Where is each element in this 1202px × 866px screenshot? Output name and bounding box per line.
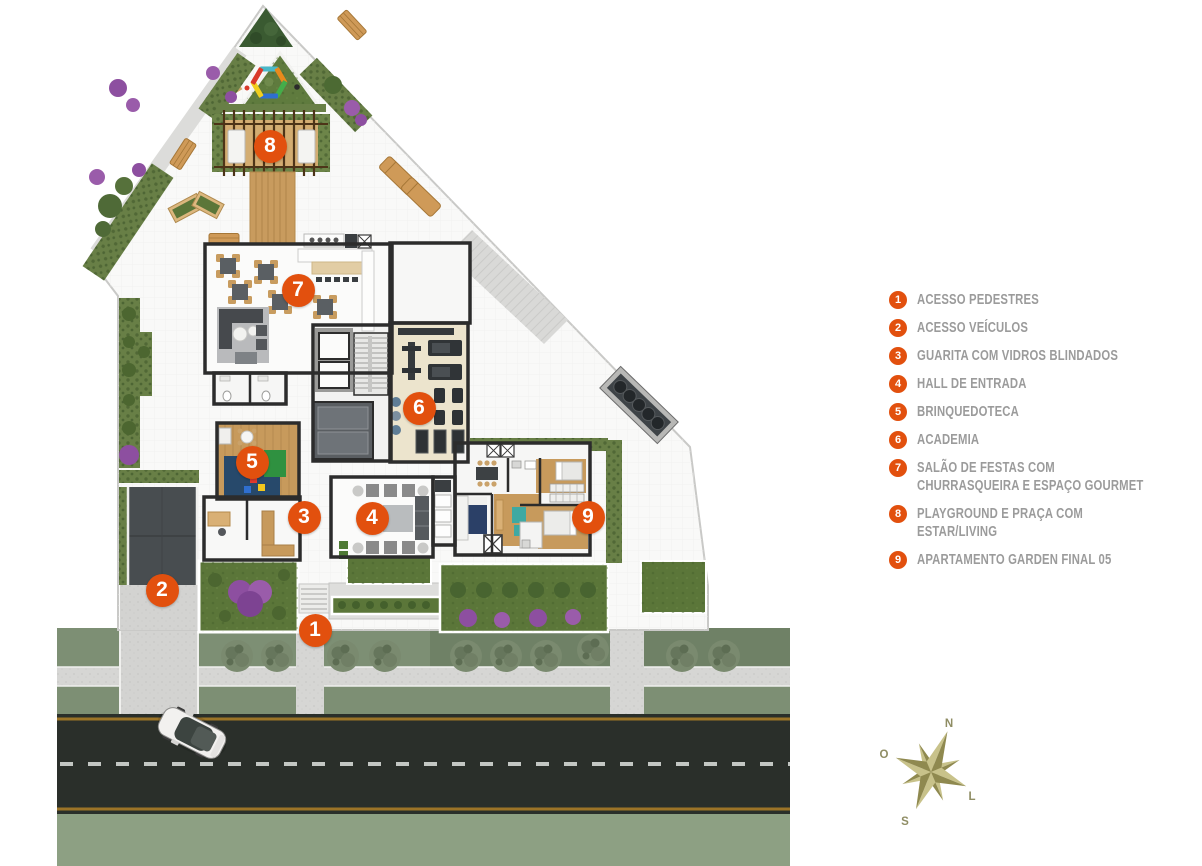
driveway-crossing bbox=[120, 630, 198, 716]
legend-number-badge: 7 bbox=[889, 459, 907, 477]
front-garden-left bbox=[199, 561, 298, 632]
compass-rose: N O L S bbox=[880, 717, 983, 828]
legend-item-label: ACADEMIA bbox=[917, 431, 979, 449]
legend-number-badge: 5 bbox=[889, 403, 907, 421]
legend-number-badge: 6 bbox=[889, 431, 907, 449]
compass-north-label: N bbox=[945, 718, 953, 730]
legend: 1ACESSO PEDESTRES2ACESSO VEÍCULOS3GUARIT… bbox=[889, 291, 1202, 569]
pergola-structure bbox=[212, 104, 330, 176]
front-garden-right bbox=[440, 564, 608, 632]
entry-steps bbox=[299, 584, 329, 613]
legend-item-label: HALL DE ENTRADA bbox=[917, 375, 1027, 393]
site-plan-page: N O L S 123456789 1ACESSO PEDESTRES2ACES… bbox=[0, 0, 1202, 866]
compass-east-label: L bbox=[968, 791, 975, 803]
legend-item-2: 2ACESSO VEÍCULOS bbox=[889, 319, 1202, 337]
compass-west-label: O bbox=[880, 749, 889, 761]
legend-item-6: 6ACADEMIA bbox=[889, 431, 1202, 449]
legend-number-badge: 2 bbox=[889, 319, 907, 337]
street-area bbox=[57, 628, 790, 866]
legend-item-3: 3GUARITA COM VIDROS BLINDADOS bbox=[889, 347, 1202, 365]
vehicle-ramp bbox=[120, 487, 198, 630]
legend-item-label: APARTAMENTO GARDEN FINAL 05 bbox=[917, 551, 1111, 569]
legend-item-5: 5BRINQUEDOTECA bbox=[889, 403, 1202, 421]
legend-number-badge: 8 bbox=[889, 505, 907, 523]
compass-south-label: S bbox=[901, 816, 909, 828]
legend-item-label: PLAYGROUND E PRAÇA COM ESTAR/LIVING bbox=[917, 505, 1153, 541]
legend-item-7: 7SALÃO DE FESTAS COM CHURRASQUEIRA E ESP… bbox=[889, 459, 1202, 495]
legend-number-badge: 3 bbox=[889, 347, 907, 365]
legend-number-badge: 4 bbox=[889, 375, 907, 393]
legend-item-8: 8PLAYGROUND E PRAÇA COM ESTAR/LIVING bbox=[889, 505, 1202, 541]
legend-item-label: SALÃO DE FESTAS COM CHURRASQUEIRA E ESPA… bbox=[917, 459, 1153, 495]
legend-item-1: 1ACESSO PEDESTRES bbox=[889, 291, 1202, 309]
legend-item-label: ACESSO PEDESTRES bbox=[917, 291, 1039, 309]
legend-number-badge: 9 bbox=[889, 551, 907, 569]
bench-icon bbox=[337, 10, 367, 41]
legend-item-label: GUARITA COM VIDROS BLINDADOS bbox=[917, 347, 1118, 365]
legend-item-label: ACESSO VEÍCULOS bbox=[917, 319, 1028, 337]
pedestrian-crossing bbox=[296, 628, 324, 716]
legend-item-label: BRINQUEDOTECA bbox=[917, 403, 1019, 421]
legend-item-4: 4HALL DE ENTRADA bbox=[889, 375, 1202, 393]
legend-item-9: 9APARTAMENTO GARDEN FINAL 05 bbox=[889, 551, 1202, 569]
boardwalk bbox=[250, 172, 295, 246]
legend-number-badge: 1 bbox=[889, 291, 907, 309]
